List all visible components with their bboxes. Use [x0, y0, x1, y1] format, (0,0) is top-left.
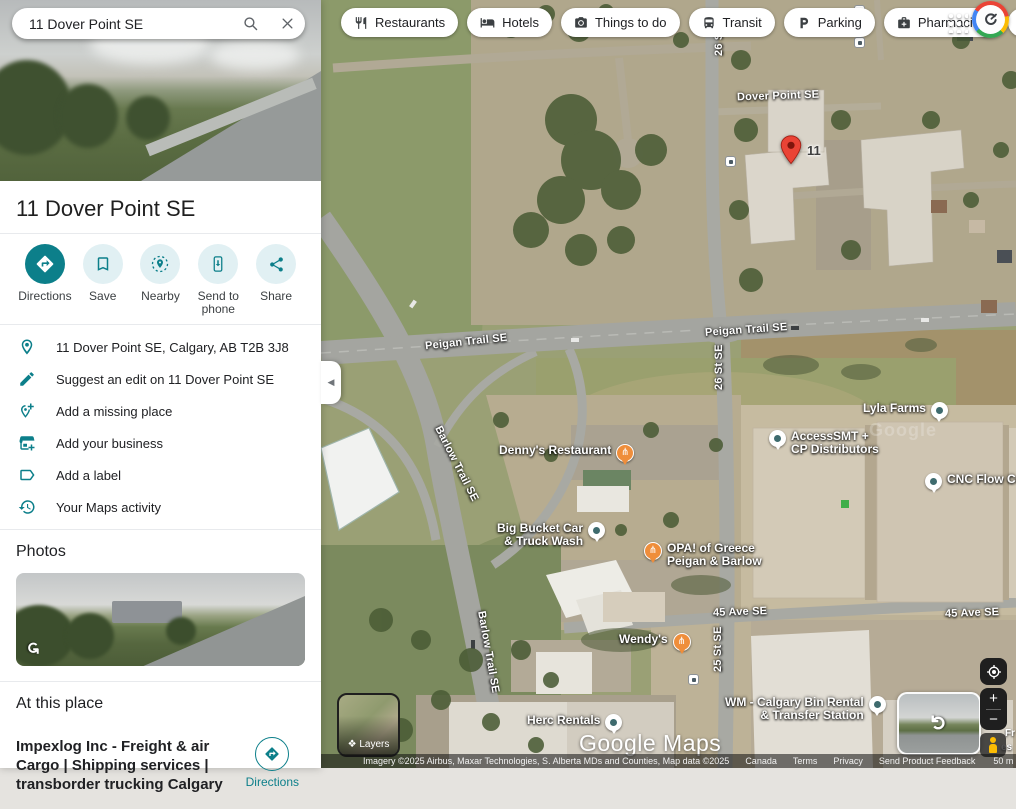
google-maps-watermark: Google Maps: [579, 730, 721, 757]
layers-control[interactable]: ❖ Layers: [337, 693, 400, 757]
poi-pin-icon: [925, 473, 942, 490]
clear-search-button[interactable]: [269, 8, 305, 39]
poi-label: Denny's Restaurant: [499, 444, 611, 457]
imagery-attribution: Imagery ©2025 Airbus, Maxar Technologies…: [363, 756, 729, 766]
chip-label: Restaurants: [375, 15, 445, 30]
collapse-panel-button[interactable]: ◀: [321, 361, 341, 404]
place-title-section: 11 Dover Point SE: [0, 181, 321, 233]
privacy-link[interactable]: Privacy: [833, 756, 863, 766]
place-pin-icon: [18, 338, 36, 356]
business-name-link[interactable]: Impexlog Inc - Freight & air Cargo | Shi…: [16, 737, 241, 794]
road-label: 25 St SE: [712, 626, 724, 672]
rotate-arrow-icon: ↺: [927, 714, 952, 731]
zoom-out-button[interactable]: −: [980, 710, 1007, 731]
add-place-icon: [18, 402, 36, 420]
poi-pin-icon: [605, 714, 622, 731]
account-avatar[interactable]: [972, 1, 1009, 38]
add-business-row[interactable]: Add your business: [0, 427, 321, 459]
poi-lyla-farms[interactable]: Lyla Farms: [863, 402, 948, 419]
transit-stop-icon[interactable]: [854, 37, 865, 48]
poi-label: CNC Flow Co: [947, 473, 1016, 486]
directions-button[interactable]: Directions: [16, 244, 74, 316]
poi-pin-icon: [769, 430, 786, 447]
poi-label: AccessSMT +: [791, 429, 869, 443]
chip-hotels[interactable]: Hotels: [467, 8, 552, 37]
transit-icon: [702, 16, 716, 30]
address-text: 11 Dover Point SE, Calgary, AB T2B 3J8: [56, 340, 289, 355]
poi-label: & Transfer Station: [760, 708, 863, 722]
cloud: [210, 40, 300, 70]
parking-icon: [797, 16, 811, 30]
tree: [58, 84, 118, 148]
save-button[interactable]: Save: [74, 244, 132, 316]
at-this-place-section: At this place Impexlog Inc - Freight & a…: [0, 682, 321, 809]
my-location-icon: [986, 664, 1002, 680]
chip-things-to-do[interactable]: Things to do: [561, 8, 680, 37]
poi-wm-calgary-bin-rental[interactable]: WM - Calgary Bin Rental & Transfer Stati…: [725, 696, 886, 722]
chip-label: Hotels: [502, 15, 539, 30]
directions-outline-icon: [255, 737, 289, 771]
poi-label: & Truck Wash: [504, 534, 583, 548]
imagery-ghost-watermark: Google: [869, 420, 937, 441]
chip-transit[interactable]: Transit: [689, 8, 775, 37]
place-info-list: 11 Dover Point SE, Calgary, AB T2B 3J8 S…: [0, 325, 321, 529]
satellite-map[interactable]: Dover Point SE 26 St SE Peigan Trail SE …: [321, 0, 1016, 768]
chip-label: Transit: [723, 15, 762, 30]
storefront-icon: [18, 434, 36, 452]
pano-360-icon: ↺: [23, 641, 43, 654]
tree: [166, 617, 196, 645]
add-missing-place-text: Add a missing place: [56, 404, 172, 419]
add-missing-place-row[interactable]: Add a missing place: [0, 395, 321, 427]
pharmacy-icon: [897, 16, 911, 30]
poi-label: WM - Calgary Bin Rental: [725, 695, 864, 709]
poi-cnc-flow[interactable]: CNC Flow Co: [925, 473, 1016, 490]
road-label: 45 Ave SE: [945, 606, 1000, 620]
directions-icon: [25, 244, 65, 284]
address-number-label: 11: [807, 143, 821, 158]
label-tag-icon: [18, 466, 36, 484]
nearby-icon: [140, 244, 180, 284]
share-button[interactable]: Share: [247, 244, 305, 316]
at-this-place-heading: At this place: [16, 695, 305, 713]
business-directions-button[interactable]: Directions: [246, 737, 299, 794]
search-icon: [242, 15, 259, 32]
share-icon: [256, 244, 296, 284]
poi-label: Wendy's: [619, 633, 668, 646]
pencil-icon: [18, 370, 36, 388]
google-apps-grid-icon[interactable]: [946, 11, 968, 33]
nearby-button[interactable]: Nearby: [132, 244, 190, 316]
action-label: Nearby: [141, 290, 180, 303]
layers-icon: ❖: [348, 739, 360, 750]
chevron-left-icon: ◀: [328, 377, 335, 388]
place-title: 11 Dover Point SE: [16, 196, 305, 222]
restaurant-pin-icon: ⋔: [616, 444, 634, 462]
search-bar: [12, 8, 305, 39]
address-row[interactable]: 11 Dover Point SE, Calgary, AB T2B 3J8: [0, 331, 321, 363]
poi-label: CP Distributors: [791, 442, 879, 456]
send-to-phone-button[interactable]: Send to phone: [189, 244, 247, 316]
chip-parking[interactable]: Parking: [784, 8, 875, 37]
restaurant-pin-icon: ⋔: [644, 542, 662, 560]
poi-pin-icon: [931, 402, 948, 419]
map-attribution-bar: Imagery ©2025 Airbus, Maxar Technologies…: [321, 754, 1016, 768]
street-view-photo[interactable]: ↺: [16, 573, 305, 666]
avatar-logo: [976, 5, 1005, 34]
zoom-control: + −: [980, 688, 1007, 730]
chip-label: Things to do: [595, 15, 667, 30]
place-panel: 11 Dover Point SE Directions Save Nearby: [0, 0, 321, 768]
destination-marker-pin[interactable]: [780, 135, 802, 165]
poi-label: Big Bucket Car: [497, 521, 583, 535]
action-label: Send to phone: [189, 290, 247, 316]
photos-section: Photos ↺: [0, 530, 321, 681]
restaurant-icon: [354, 16, 368, 30]
poi-accesssmt-cp-distributors[interactable]: AccessSMT + CP Distributors: [769, 430, 879, 456]
history-icon: [18, 498, 36, 516]
scale-label: 50 m: [993, 756, 1013, 766]
place-actions: Directions Save Nearby Send to phone Sha…: [0, 234, 321, 324]
chip-restaurants[interactable]: Restaurants: [341, 8, 458, 37]
suggest-edit-row[interactable]: Suggest an edit on 11 Dover Point SE: [0, 363, 321, 395]
zoom-in-button[interactable]: +: [980, 688, 1007, 709]
phone-icon: [198, 244, 238, 284]
maps-activity-text: Your Maps activity: [56, 500, 161, 515]
chip-label: Parking: [818, 15, 862, 30]
transit-stop-icon[interactable]: [725, 156, 736, 167]
poi-label: Lyla Farms: [863, 402, 926, 415]
street-view-preview[interactable]: ↺: [897, 692, 981, 755]
pegman-icon: [990, 737, 996, 743]
poi-label: OPA! of Greece: [667, 541, 755, 555]
satellite-imagery: [321, 0, 1016, 768]
add-business-text: Add your business: [56, 436, 163, 451]
action-label: Share: [260, 290, 292, 303]
poi-pin-icon: [869, 696, 886, 713]
business-row: Impexlog Inc - Freight & air Cargo | Shi…: [16, 737, 305, 794]
poi-dennys-restaurant[interactable]: Denny's Restaurant ⋔: [499, 444, 634, 462]
category-chip-bar: Restaurants Hotels Things to do Transit …: [341, 8, 1016, 37]
pegman-icon: [989, 744, 997, 753]
poi-label: Peigan & Barlow: [667, 554, 762, 568]
restaurant-pin-icon: ⋔: [673, 633, 691, 651]
tree: [126, 96, 170, 140]
directions-label: Directions: [246, 775, 299, 789]
road-label: 26 St SE: [713, 344, 725, 390]
poi-label: Herc Rentals: [527, 714, 600, 727]
transit-stop-icon[interactable]: [688, 674, 699, 685]
camera-icon: [574, 16, 588, 30]
poi-pin-icon: [588, 522, 605, 539]
road-label: 45 Ave SE: [713, 605, 768, 619]
tree: [66, 613, 114, 659]
country-link[interactable]: Canada: [745, 756, 777, 766]
add-label-row[interactable]: Add a label: [0, 459, 321, 491]
poi-opa-of-greece[interactable]: ⋔ OPA! of Greece Peigan & Barlow: [644, 542, 762, 568]
photos-heading: Photos: [16, 543, 305, 561]
close-icon: [280, 16, 295, 31]
map-scale: 50 m: [993, 756, 1016, 766]
bookmark-icon: [83, 244, 123, 284]
layers-label: ❖ Layers: [339, 739, 398, 750]
add-label-text: Add a label: [56, 468, 121, 483]
poi-herc-rentals[interactable]: Herc Rentals: [527, 714, 622, 731]
terms-link[interactable]: Terms: [793, 756, 818, 766]
suggest-edit-text: Suggest an edit on 11 Dover Point SE: [56, 372, 274, 387]
feedback-link[interactable]: Send Product Feedback: [879, 756, 976, 766]
action-label: Save: [89, 290, 116, 303]
search-input[interactable]: [12, 16, 231, 32]
my-location-button[interactable]: [980, 658, 1007, 685]
search-button[interactable]: [231, 8, 269, 39]
maps-activity-row[interactable]: Your Maps activity: [0, 491, 321, 523]
hotel-icon: [480, 15, 495, 30]
poi-wendys[interactable]: Wendy's ⋔: [619, 633, 691, 651]
action-label: Directions: [18, 290, 71, 303]
poi-big-bucket-car-wash[interactable]: Big Bucket Car & Truck Wash: [497, 522, 605, 548]
chip-atm[interactable]: ATM: [1008, 8, 1016, 37]
